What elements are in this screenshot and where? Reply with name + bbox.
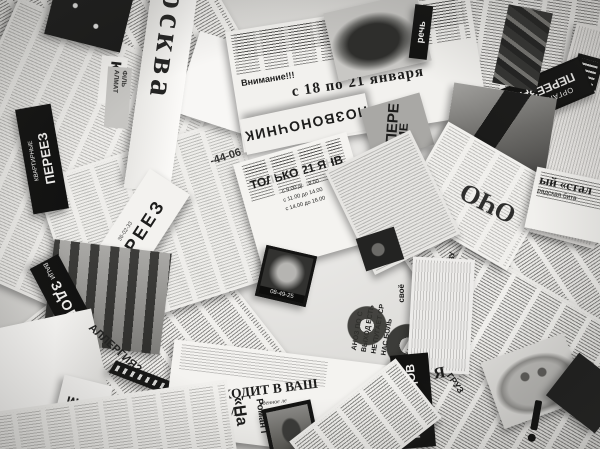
film-ad-band: ФІЛЬ АЛМАТ [104, 66, 132, 129]
exclamation-bar [530, 400, 542, 431]
phone-fragment-3: 08-49-25 [258, 285, 305, 303]
exclamation-dot [527, 433, 536, 442]
svoe-text: своё [397, 284, 406, 303]
rech-text: речь [414, 20, 428, 43]
vaci-text: ВАЦИ [42, 262, 57, 281]
small-photo-ad: 08-49-25 [255, 245, 317, 307]
newspaper-collage-photo: осква кв ФІЛЬ АЛМАТ Внимание!!! с 18 по … [0, 0, 600, 449]
